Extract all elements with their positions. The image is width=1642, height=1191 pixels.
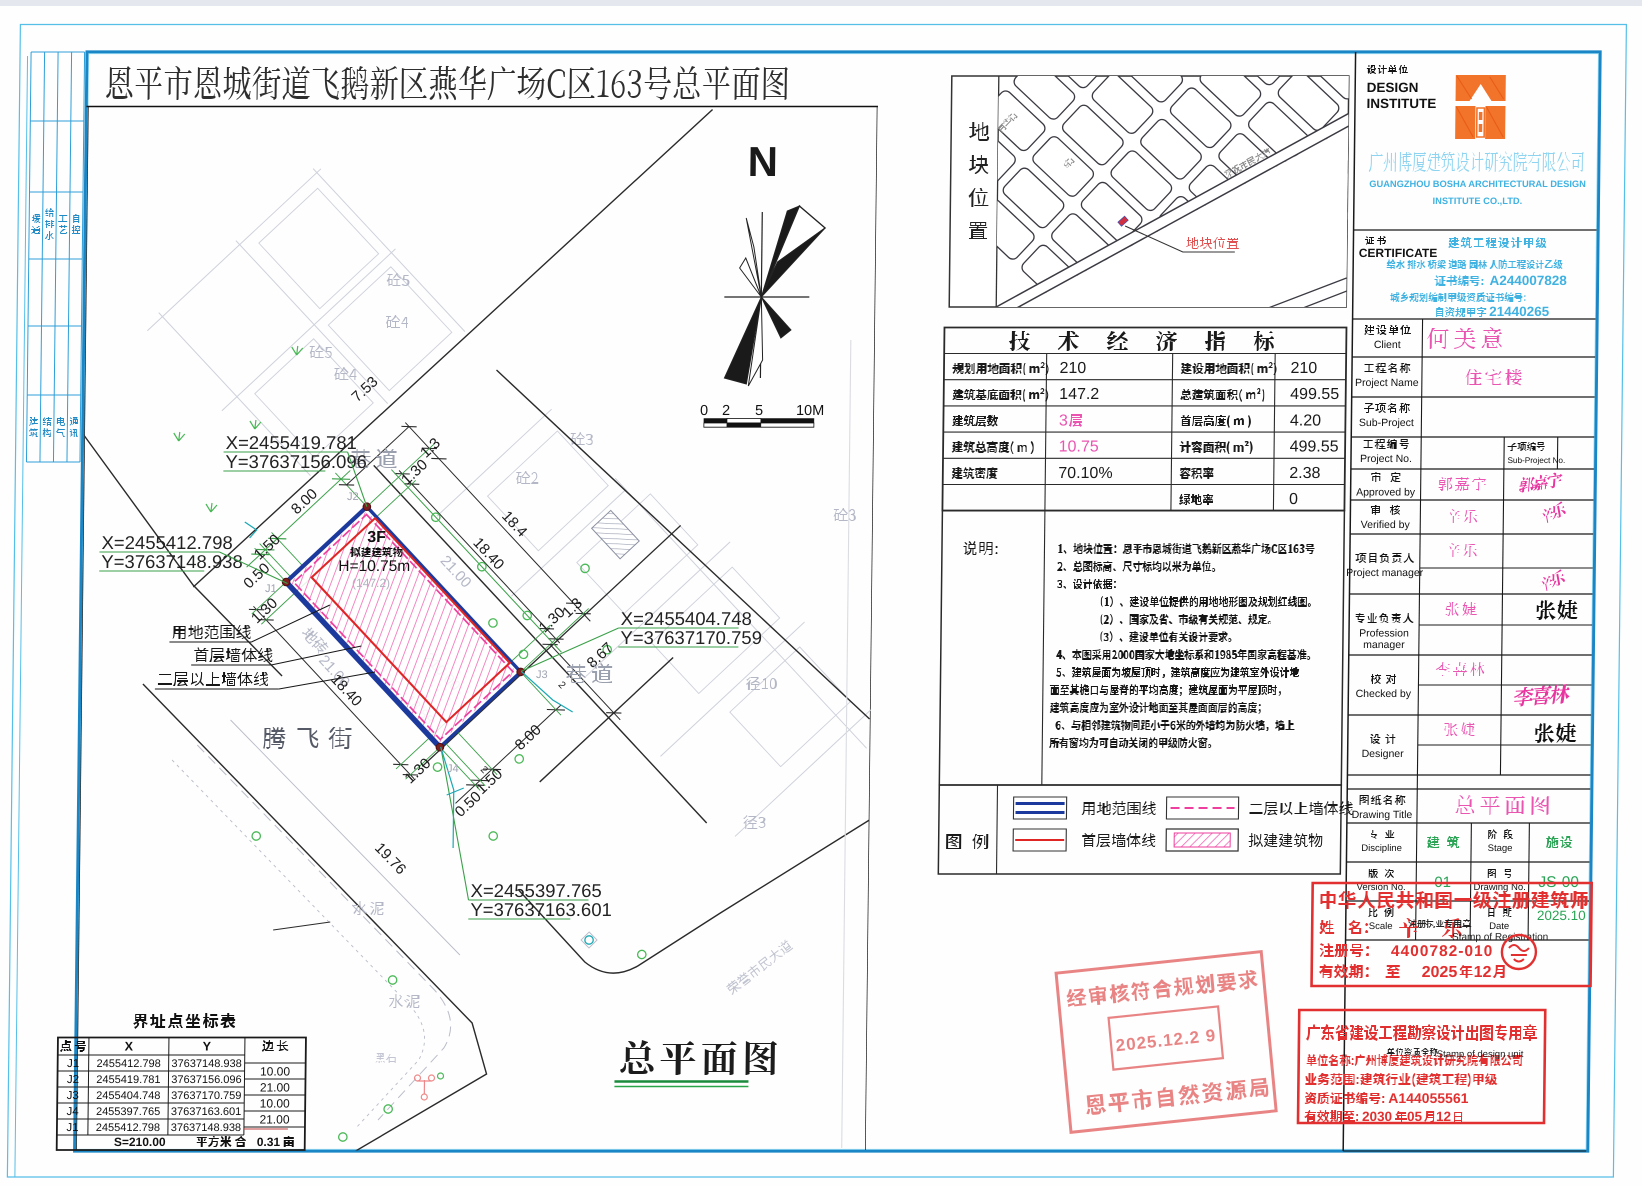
svg-text:Client: Client xyxy=(1374,339,1401,351)
svg-text:70.10%: 70.10% xyxy=(1058,465,1112,482)
svg-text:10.00: 10.00 xyxy=(260,1097,291,1111)
svg-text:2455412.798: 2455412.798 xyxy=(96,1058,160,1070)
svg-text:J3: J3 xyxy=(536,669,548,681)
svg-text:X=2455419.781: X=2455419.781 xyxy=(226,432,357,453)
svg-text:2455397.765: 2455397.765 xyxy=(96,1106,160,1118)
svg-text:210: 210 xyxy=(1059,360,1086,377)
svg-text:X=2455412.798: X=2455412.798 xyxy=(101,532,232,553)
svg-text:J4: J4 xyxy=(66,1106,79,1118)
svg-text:4.20: 4.20 xyxy=(1290,412,1321,429)
svg-text:499.55: 499.55 xyxy=(1290,386,1339,403)
svg-text:Scale: Scale xyxy=(1369,921,1393,932)
svg-text:Stamp of Registration: Stamp of Registration xyxy=(1452,932,1548,943)
svg-text:Stage: Stage xyxy=(1488,843,1513,854)
svg-text:2025.10: 2025.10 xyxy=(1537,908,1586,923)
svg-text:147.2: 147.2 xyxy=(1059,386,1099,403)
svg-text:INSTITUTE CO.,LTD.: INSTITUTE CO.,LTD. xyxy=(1433,196,1523,206)
svg-text:0: 0 xyxy=(1289,491,1298,508)
svg-text:INSTITUTE: INSTITUTE xyxy=(1366,96,1436,111)
svg-text:2030: 2030 xyxy=(1362,1109,1392,1124)
svg-text:manager: manager xyxy=(1363,639,1405,651)
svg-text:X=2455397.765: X=2455397.765 xyxy=(470,880,601,901)
svg-text:21.00: 21.00 xyxy=(260,1081,291,1095)
svg-text:J1: J1 xyxy=(67,1058,79,1070)
svg-text:210: 210 xyxy=(1290,360,1317,377)
svg-text:J3: J3 xyxy=(67,1090,79,1102)
svg-text:X=2455404.748: X=2455404.748 xyxy=(621,608,752,629)
svg-text:Y=37637148.938: Y=37637148.938 xyxy=(101,551,243,572)
svg-text:A244007828: A244007828 xyxy=(1489,273,1567,288)
svg-text:0.31: 0.31 xyxy=(257,1135,281,1149)
svg-text:H=10.75m: H=10.75m xyxy=(338,558,410,575)
svg-text:Date: Date xyxy=(1489,921,1509,932)
svg-text:2.38: 2.38 xyxy=(1289,465,1320,482)
svg-text:Project manager: Project manager xyxy=(1346,567,1424,579)
svg-text:21440265: 21440265 xyxy=(1489,304,1550,319)
svg-text:DESIGN: DESIGN xyxy=(1367,80,1419,95)
svg-text:Project Name: Project Name xyxy=(1355,377,1419,389)
svg-text:J2: J2 xyxy=(67,1074,79,1086)
svg-text:37637156.096: 37637156.096 xyxy=(171,1074,241,1086)
svg-text:10.75: 10.75 xyxy=(1059,439,1099,456)
svg-text:N: N xyxy=(747,138,778,185)
svg-text:21.00: 21.00 xyxy=(259,1113,290,1127)
svg-text:X: X xyxy=(125,1040,134,1054)
svg-text:37637170.759: 37637170.759 xyxy=(171,1090,241,1102)
svg-text:2455419.781: 2455419.781 xyxy=(96,1074,160,1086)
svg-text:5: 5 xyxy=(755,403,763,419)
svg-text:Discipline: Discipline xyxy=(1361,843,1402,854)
svg-text:Designer: Designer xyxy=(1362,748,1405,760)
svg-text:10.00: 10.00 xyxy=(260,1065,291,1079)
svg-text:37637148.938: 37637148.938 xyxy=(171,1058,241,1070)
svg-text:J1: J1 xyxy=(66,1122,78,1134)
svg-text:0: 0 xyxy=(700,403,708,419)
svg-text:2: 2 xyxy=(722,403,730,419)
svg-text:GUANGZHOU BOSHA ARCHITECTURAL: GUANGZHOU BOSHA ARCHITECTURAL DESIGN xyxy=(1369,179,1586,189)
svg-text:499.55: 499.55 xyxy=(1290,439,1339,456)
svg-text:J4: J4 xyxy=(447,763,459,775)
svg-text:37637148.938: 37637148.938 xyxy=(171,1122,241,1134)
svg-text:4400782-010: 4400782-010 xyxy=(1391,943,1494,960)
svg-text:CERTIFICATE: CERTIFICATE xyxy=(1359,246,1438,260)
svg-text:2025: 2025 xyxy=(1422,964,1458,981)
svg-text:S=210.00: S=210.00 xyxy=(114,1135,166,1149)
svg-text:Drawing Title: Drawing Title xyxy=(1352,809,1413,821)
svg-text:Y=37637170.759: Y=37637170.759 xyxy=(620,627,762,648)
svg-text:12: 12 xyxy=(1474,964,1492,981)
svg-text:Checked by: Checked by xyxy=(1356,688,1412,700)
svg-text:Y: Y xyxy=(203,1040,212,1054)
svg-text:05: 05 xyxy=(1407,1109,1423,1124)
svg-text:Sub-Project: Sub-Project xyxy=(1359,417,1414,429)
svg-text:Project No.: Project No. xyxy=(1360,453,1412,465)
svg-text:3F: 3F xyxy=(367,529,386,546)
svg-text:Stamp of design unit: Stamp of design unit xyxy=(1437,1049,1524,1060)
svg-text:2455412.798: 2455412.798 xyxy=(96,1122,160,1134)
svg-text:J2: J2 xyxy=(347,491,359,503)
svg-text:Sub-Project No.: Sub-Project No. xyxy=(1507,456,1565,465)
svg-text:3: 3 xyxy=(1059,412,1068,429)
svg-text:(147.2): (147.2) xyxy=(352,576,390,590)
svg-text:Verified by: Verified by xyxy=(1361,519,1411,531)
svg-text:Y=37637163.601: Y=37637163.601 xyxy=(470,899,612,920)
svg-text:12: 12 xyxy=(1436,1109,1451,1124)
svg-text:10M: 10M xyxy=(796,403,824,419)
svg-text:J1: J1 xyxy=(265,583,277,595)
svg-text:2455404.748: 2455404.748 xyxy=(96,1090,160,1102)
svg-text:37637163.601: 37637163.601 xyxy=(171,1106,241,1118)
svg-text:A144055561: A144055561 xyxy=(1388,1090,1469,1106)
svg-text:Y=37637156.096: Y=37637156.096 xyxy=(225,451,367,472)
svg-text:Profession: Profession xyxy=(1359,628,1409,640)
svg-text:Approved by: Approved by xyxy=(1356,487,1416,499)
